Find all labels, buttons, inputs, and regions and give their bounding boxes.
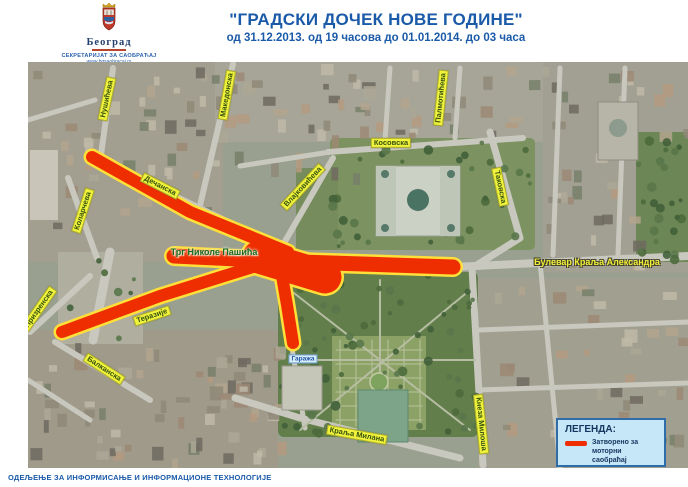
page-title: "ГРАДСКИ ДОЧЕК НОВЕ ГОДИНЕ" [196, 10, 556, 30]
belgrade-coat-of-arms-icon [99, 2, 119, 32]
street-label: Трг Николе Пашића [171, 248, 258, 258]
closed-road-line-icon [565, 441, 587, 446]
street-label: Гаража [288, 354, 317, 363]
city-logo: Београд СЕКРЕТАРИЈАТ ЗА САОБРАЋАЈ www.bg… [50, 2, 168, 65]
poster: Београд СЕКРЕТАРИЈАТ ЗА САОБРАЋАЈ www.bg… [0, 0, 688, 487]
legend-title: ЛЕГЕНДА: [565, 424, 664, 435]
legend-item: Затворено за моторни саобраћај [565, 438, 664, 465]
legend: ЛЕГЕНДА: Затворено за моторни саобраћај [556, 418, 666, 467]
logo-divider [92, 49, 126, 51]
footer-department: ОДЕЉЕЊЕ ЗА ИНФОРМИСАЊЕ И ИНФОРМАЦИОНЕ ТЕ… [8, 473, 271, 482]
street-label: Косовска [371, 138, 411, 148]
satellite-map: НушићеваМакедонскаПалмотићеваДечанскаКол… [28, 62, 688, 468]
street-label: Булевар Краља Александра [534, 258, 660, 268]
legend-item-label: Затворено за моторни саобраћај [592, 438, 656, 465]
event-dates: од 31.12.2013. од 19 часова до 01.01.201… [196, 32, 556, 44]
logo-city-name: Београд [50, 37, 168, 48]
